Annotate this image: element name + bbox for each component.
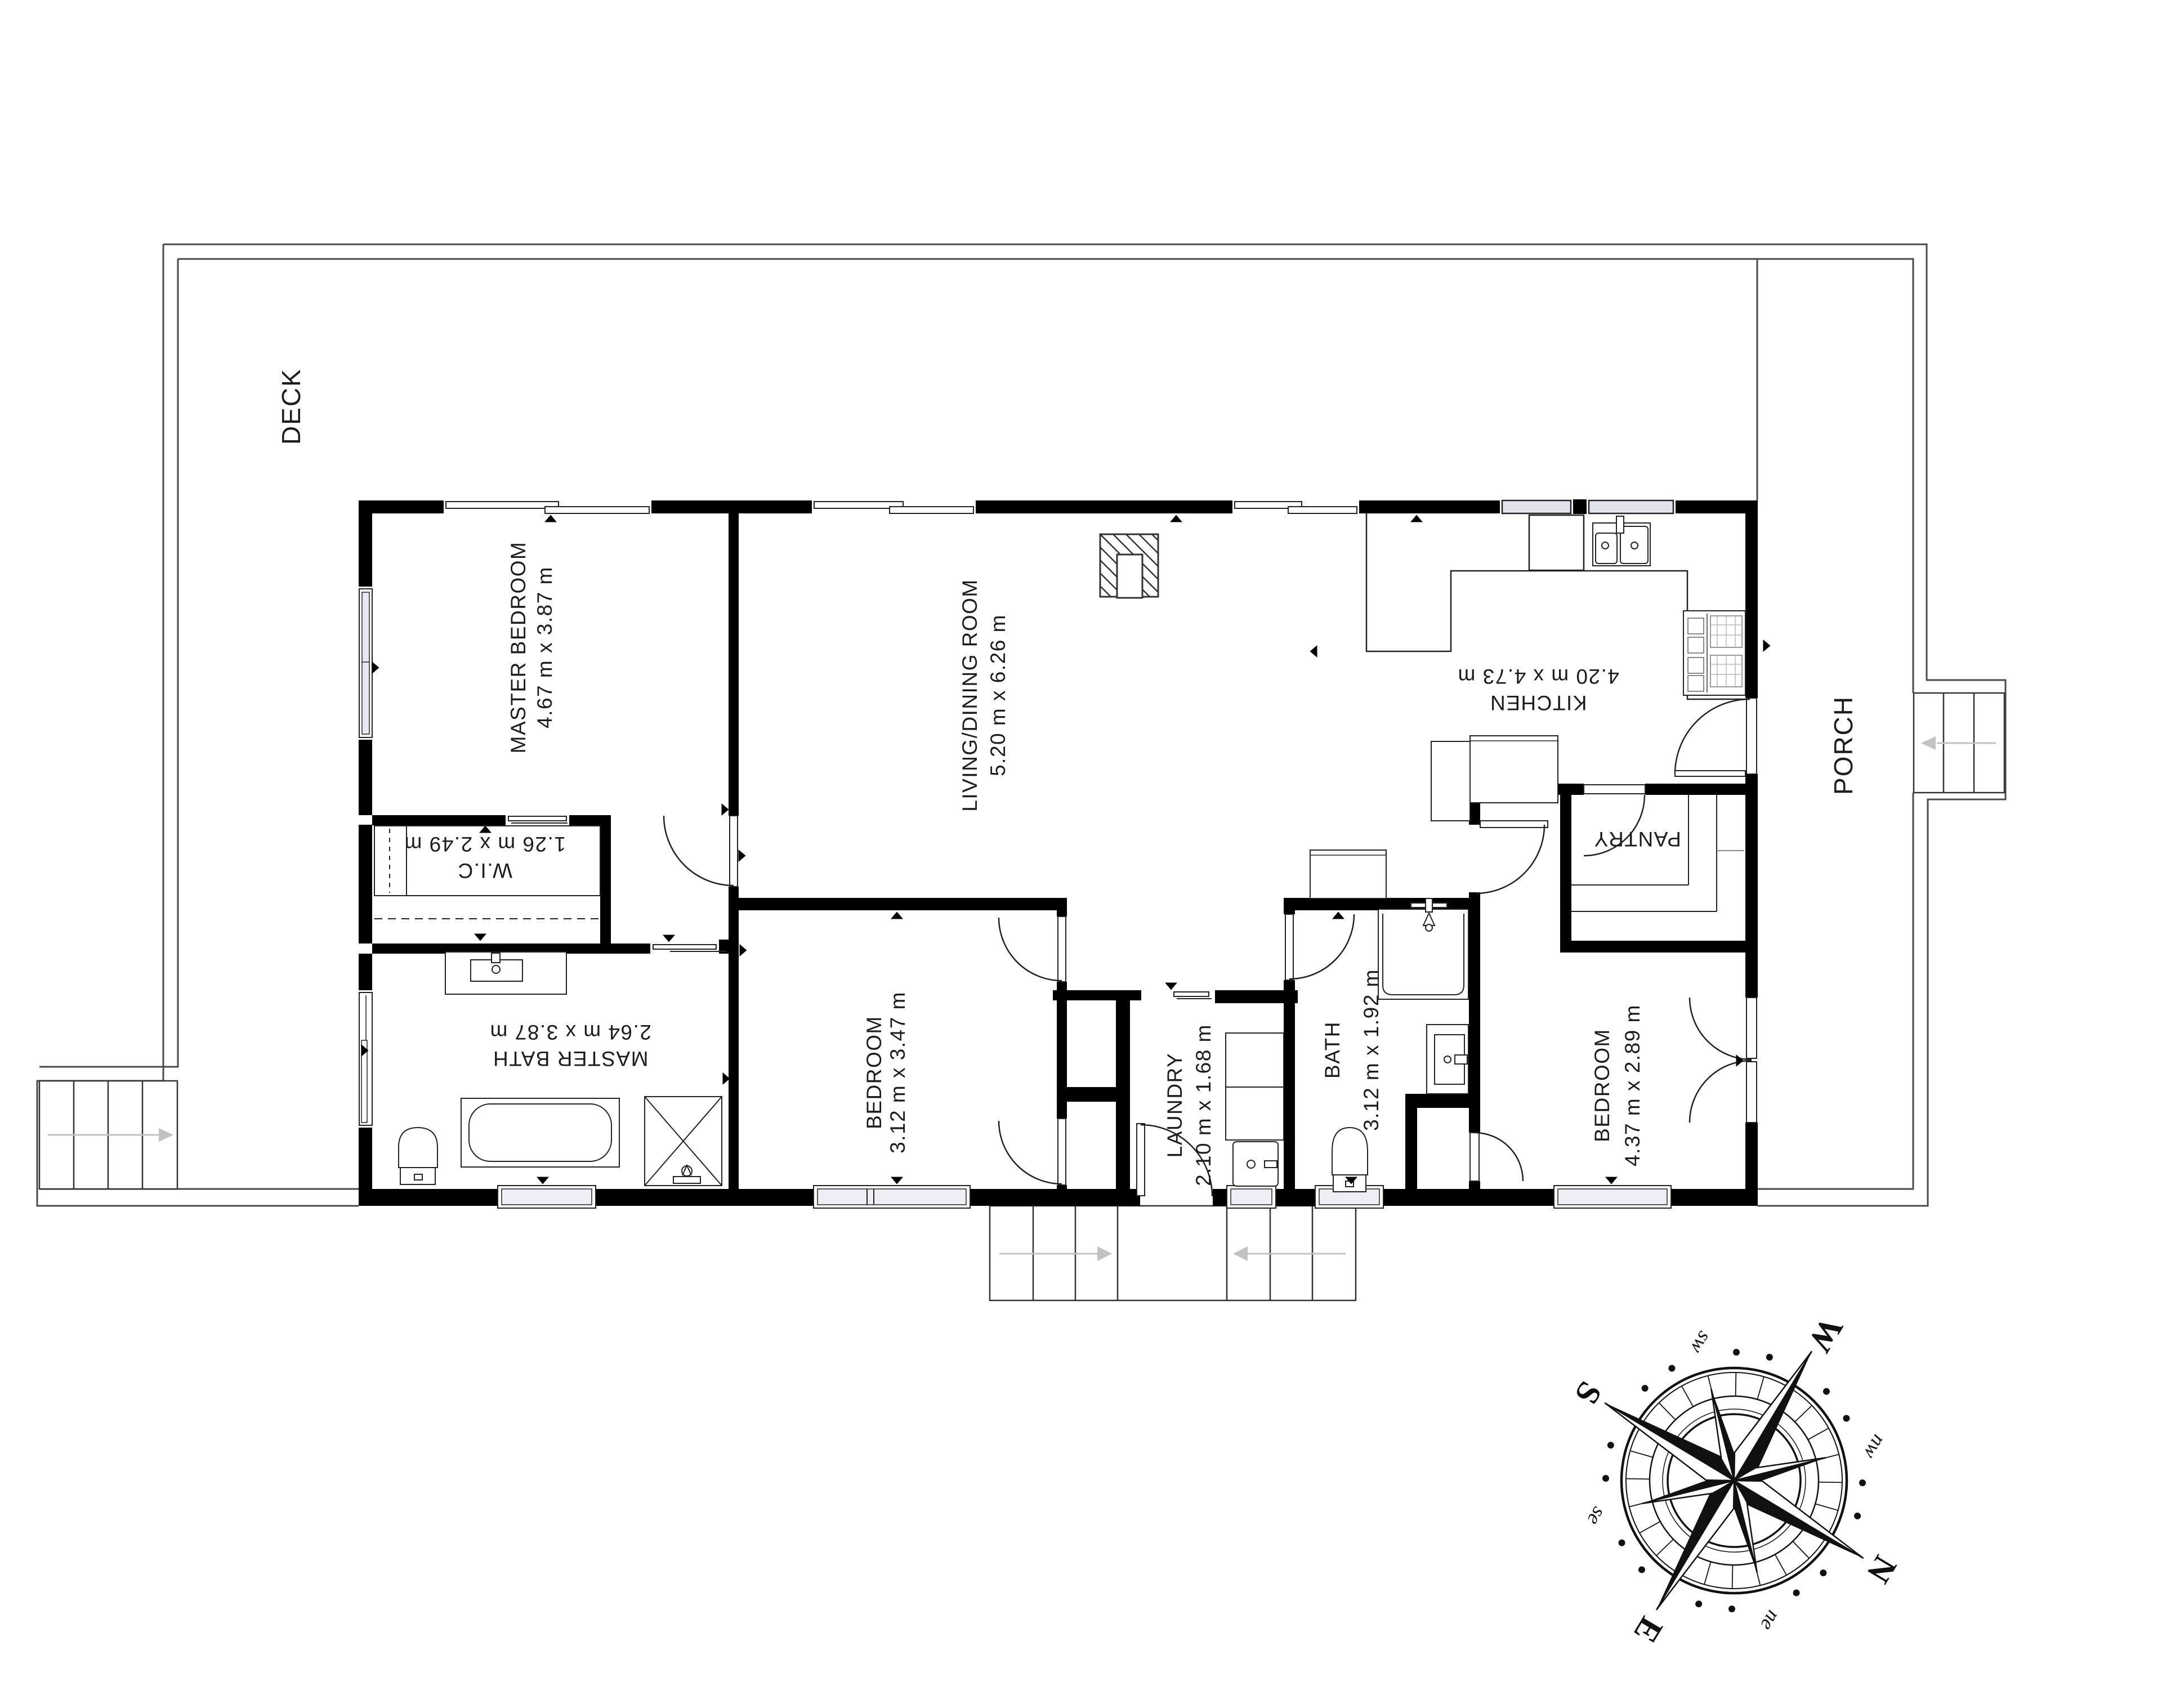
svg-text:BATH: BATH <box>1321 1021 1344 1079</box>
svg-text:1.26 m x 2.49 m: 1.26 m x 2.49 m <box>404 833 566 856</box>
svg-text:4.37 m x 2.89 m: 4.37 m x 2.89 m <box>1621 1004 1644 1166</box>
svg-text:2.64 m x 3.87 m: 2.64 m x 3.87 m <box>489 1021 651 1044</box>
svg-text:3.12 m x 3.47 m: 3.12 m x 3.47 m <box>886 991 909 1153</box>
svg-text:LIVING/DINING ROOM: LIVING/DINING ROOM <box>958 579 981 811</box>
svg-text:DECK: DECK <box>276 368 306 445</box>
svg-text:W.I.C: W.I.C <box>457 859 512 882</box>
svg-text:LAUNDRY: LAUNDRY <box>1163 1053 1186 1158</box>
svg-text:MASTER BATH: MASTER BATH <box>493 1047 649 1070</box>
svg-text:KITCHEN: KITCHEN <box>1490 691 1587 714</box>
svg-text:MASTER BEDROOM: MASTER BEDROOM <box>507 542 530 754</box>
svg-text:5.20 m x 6.26 m: 5.20 m x 6.26 m <box>986 614 1009 776</box>
svg-text:3.12 m x 1.92 m: 3.12 m x 1.92 m <box>1360 969 1383 1131</box>
svg-text:BEDROOM: BEDROOM <box>863 1016 886 1129</box>
svg-text:BEDROOM: BEDROOM <box>1591 1029 1614 1142</box>
svg-text:2.10 m x 1.68 m: 2.10 m x 1.68 m <box>1192 1024 1215 1186</box>
svg-text:4.20 m x 4.73 m: 4.20 m x 4.73 m <box>1457 665 1619 688</box>
svg-text:4.67 m x 3.87 m: 4.67 m x 3.87 m <box>533 566 556 728</box>
svg-text:PANTRY: PANTRY <box>1593 828 1681 851</box>
svg-text:PORCH: PORCH <box>1829 696 1858 795</box>
